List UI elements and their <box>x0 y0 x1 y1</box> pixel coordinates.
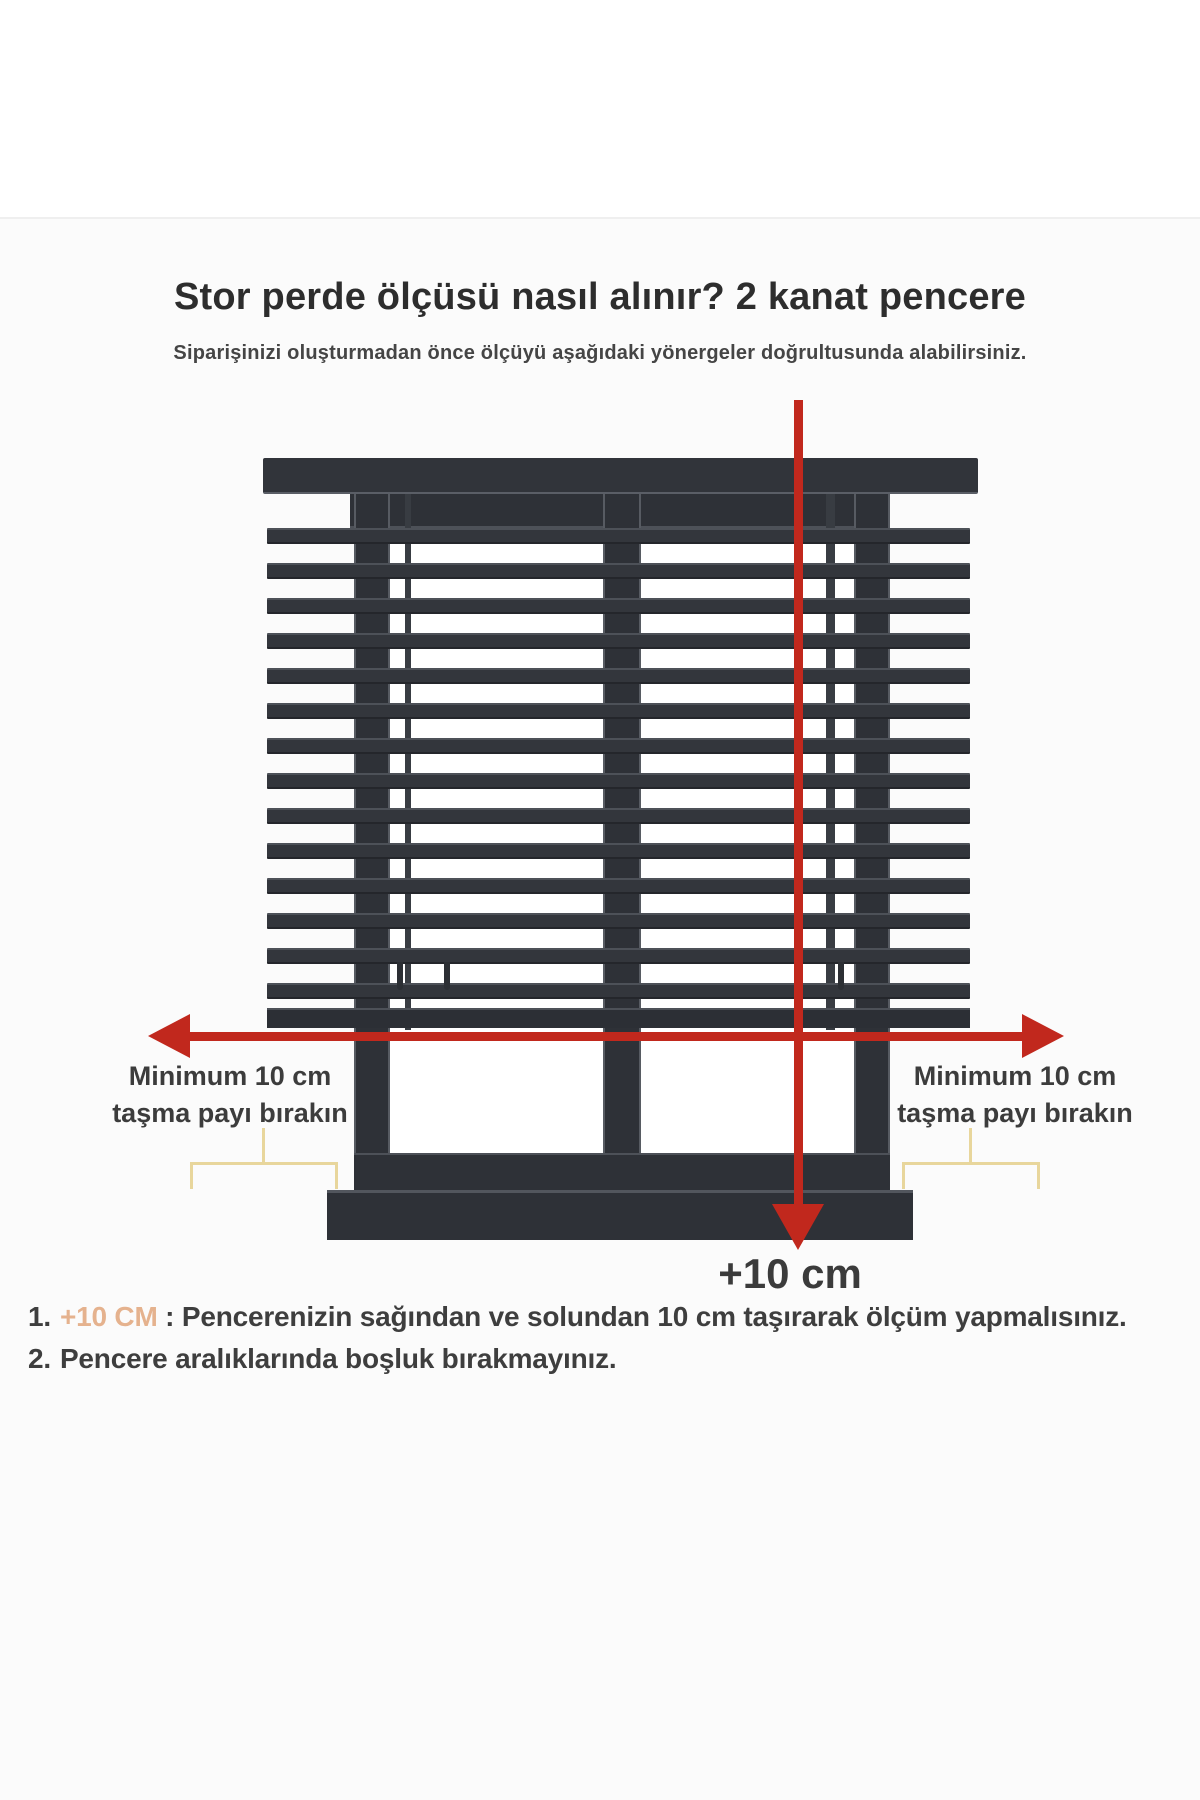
window-sill <box>327 1190 913 1240</box>
right-overhang-label-line2: taşma payı bırakın <box>855 1095 1175 1132</box>
blind-slat <box>267 738 970 754</box>
blind-slat <box>267 983 970 999</box>
left-overhang-label-line1: Minimum 10 cm <box>70 1058 390 1095</box>
measurement-diagram: Minimum 10 cm taşma payı bırakın Minimum… <box>0 0 1200 1800</box>
blind-slat <box>267 633 970 649</box>
blind-slat <box>267 878 970 894</box>
right-overhang-label: Minimum 10 cm taşma payı bırakın <box>855 1058 1175 1132</box>
blind-slat <box>267 913 970 929</box>
right-underbrace-icon <box>902 1128 1040 1190</box>
blind-slat <box>267 948 970 964</box>
blind-slat <box>267 773 970 789</box>
instruction-2-number: 2. <box>28 1343 51 1374</box>
instructions-list: 1.+10 CM : Pencerenizin sağından ve solu… <box>28 1296 1127 1380</box>
width-measure-arrow <box>180 1032 1028 1041</box>
blind-slat <box>267 528 970 544</box>
instruction-1-number: 1. <box>28 1301 51 1332</box>
blind-tassel <box>397 962 403 990</box>
right-overhang-label-line1: Minimum 10 cm <box>855 1058 1175 1095</box>
instruction-item-1: 1.+10 CM : Pencerenizin sağından ve solu… <box>28 1296 1127 1338</box>
left-overhang-label: Minimum 10 cm taşma payı bırakın <box>70 1058 390 1132</box>
blind-slat <box>267 668 970 684</box>
instruction-1-text: : Pencerenizin sağından ve solundan 10 c… <box>158 1301 1127 1332</box>
window-pane-right <box>641 526 854 1153</box>
left-arrowhead-icon <box>148 1014 190 1058</box>
instruction-item-2: 2.Pencere aralıklarında boşluk bırakmayı… <box>28 1338 1127 1380</box>
blind-tassel <box>444 962 450 990</box>
blind-slat <box>267 808 970 824</box>
blind-headrail <box>263 458 978 494</box>
instruction-2-text: Pencere aralıklarında boşluk bırakmayını… <box>60 1343 617 1374</box>
infographic-canvas: Stor perde ölçüsü nasıl alınır? 2 kanat … <box>0 0 1200 1800</box>
blind-slat <box>267 563 970 579</box>
blind-slat <box>267 703 970 719</box>
window-frame-bottom <box>354 1153 890 1190</box>
down-arrowhead-icon <box>772 1204 824 1250</box>
right-arrowhead-icon <box>1022 1014 1064 1058</box>
blind-tassel <box>838 962 844 990</box>
blind-bottom-rail <box>267 1008 970 1028</box>
window-pane-left <box>390 526 603 1153</box>
blind-slat <box>267 843 970 859</box>
left-overhang-label-line2: taşma payı bırakın <box>70 1095 390 1132</box>
blind-slat <box>267 598 970 614</box>
instruction-1-highlight: +10 CM <box>60 1301 158 1332</box>
left-underbrace-icon <box>190 1128 338 1190</box>
height-measure-arrow <box>794 400 803 1208</box>
plus-10cm-label: +10 cm <box>680 1250 900 1298</box>
